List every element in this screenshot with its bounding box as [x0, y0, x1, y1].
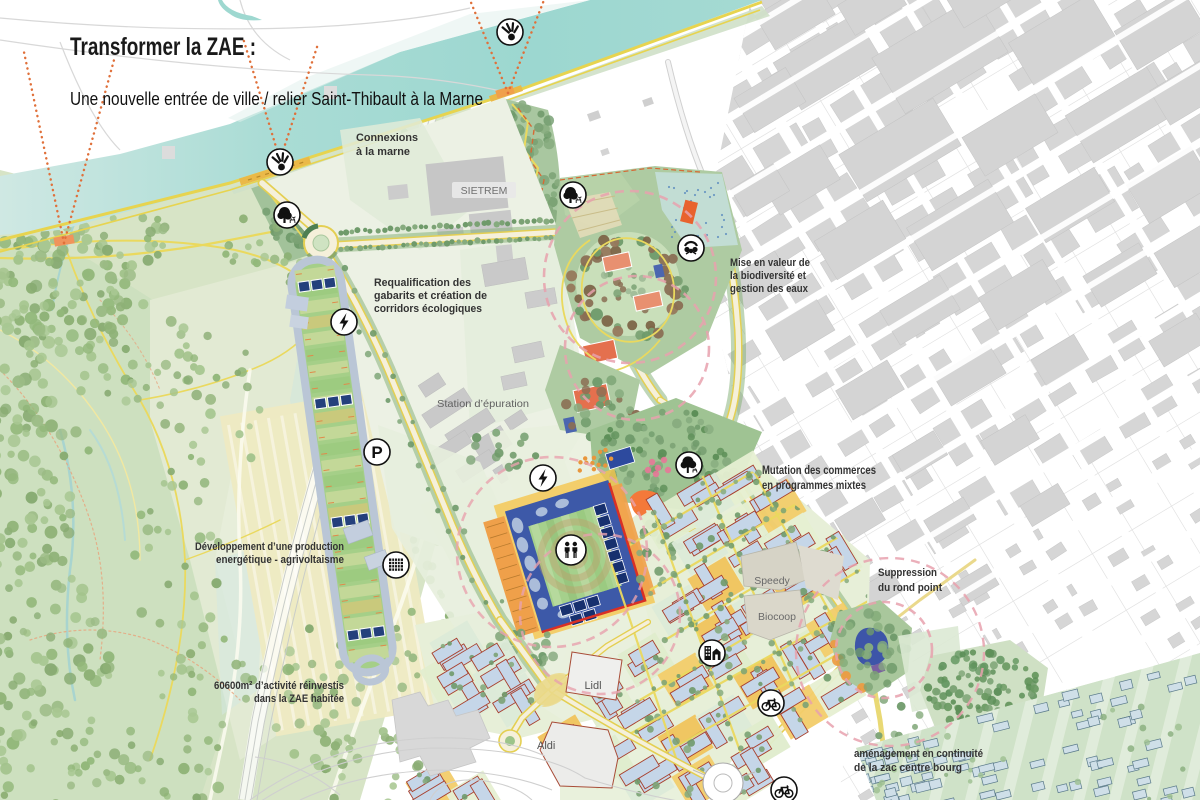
- svg-text:Biocoop: Biocoop: [758, 611, 796, 623]
- svg-text:dans la ZAE habitée: dans la ZAE habitée: [254, 693, 344, 705]
- svg-text:Connexions: Connexions: [356, 132, 418, 144]
- svg-text:corridors écologiques: corridors écologiques: [374, 303, 482, 315]
- svg-text:energétique - agrivoltaisme: energétique - agrivoltaisme: [216, 554, 344, 566]
- svg-text:à la marne: à la marne: [356, 146, 410, 158]
- svg-text:gabarits et création de: gabarits et création de: [374, 290, 487, 302]
- svg-text:Mutation des commerces: Mutation des commerces: [762, 465, 876, 477]
- svg-text:la biodiversité et: la biodiversité et: [730, 270, 806, 282]
- svg-text:aménagement en continuité: aménagement en continuité: [854, 748, 983, 760]
- svg-text:du rond point: du rond point: [878, 582, 942, 594]
- svg-text:Speedy: Speedy: [754, 575, 790, 587]
- svg-text:de la zac centre bourg: de la zac centre bourg: [854, 762, 962, 774]
- svg-text:Une nouvelle entrée de ville /: Une nouvelle entrée de ville / relier Sa…: [70, 89, 483, 109]
- svg-text:60600m² d’activité réinvestis: 60600m² d’activité réinvestis: [214, 680, 344, 692]
- svg-text:Requalification des: Requalification des: [374, 277, 471, 289]
- svg-text:Transformer la ZAE :: Transformer la ZAE :: [70, 33, 256, 61]
- svg-text:Suppression: Suppression: [878, 567, 937, 579]
- svg-text:gestion des eaux: gestion des eaux: [730, 283, 808, 295]
- svg-text:Développement d’une production: Développement d’une production: [195, 541, 344, 553]
- svg-text:en programmes mixtes: en programmes mixtes: [762, 480, 866, 492]
- svg-text:Aldi: Aldi: [537, 740, 555, 752]
- svg-text:Station d’épuration: Station d’épuration: [437, 398, 529, 410]
- svg-text:SIETREM: SIETREM: [461, 185, 508, 197]
- svg-text:Lidl: Lidl: [584, 680, 601, 692]
- svg-text:Mise en valeur de: Mise en valeur de: [730, 257, 810, 269]
